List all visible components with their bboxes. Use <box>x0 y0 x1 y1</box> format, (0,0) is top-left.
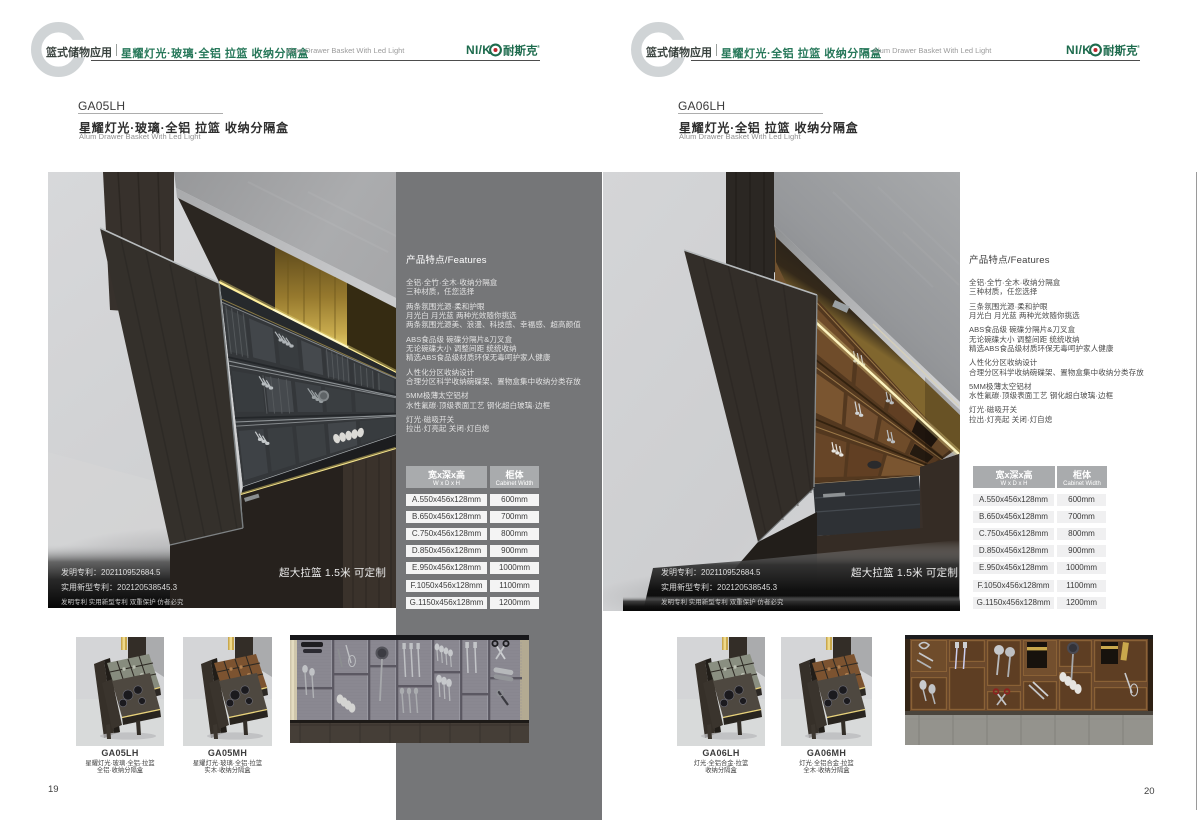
svg-text:®: ® <box>537 44 540 49</box>
svg-text:耐斯克: 耐斯克 <box>1103 44 1138 58</box>
svg-text:®: ® <box>1137 44 1140 49</box>
svg-text:NI/K: NI/K <box>1066 43 1091 57</box>
svg-text:耐斯克: 耐斯克 <box>503 44 538 58</box>
svg-text:NI/K: NI/K <box>466 43 491 57</box>
